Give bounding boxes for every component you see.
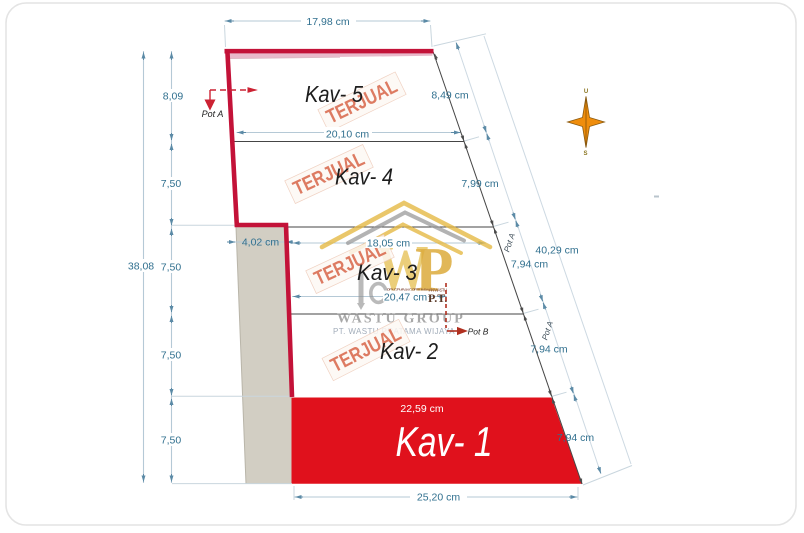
svg-text:7,50: 7,50 [161,435,182,447]
svg-text:U: U [584,89,588,95]
svg-text:17,98 cm: 17,98 cm [306,16,349,28]
svg-text:7,99 cm: 7,99 cm [461,178,499,190]
svg-text:Pot A: Pot A [502,232,517,253]
svg-text:4,02 cm: 4,02 cm [242,237,280,249]
svg-text:Kav- 1: Kav- 1 [396,418,493,465]
svg-text:7,94 cm: 7,94 cm [530,344,568,356]
svg-text:7,50: 7,50 [161,262,182,274]
svg-text:P.T.: P.T. [428,291,447,305]
svg-text:7,94 cm: 7,94 cm [511,259,549,271]
svg-text:Kav- 4: Kav- 4 [335,164,393,190]
svg-text:20,47 cm: 20,47 cm [384,292,427,304]
svg-text:Pot A: Pot A [202,109,224,119]
svg-text:7,94 cm: 7,94 cm [557,432,595,444]
svg-text:8,49 cm: 8,49 cm [431,90,469,102]
svg-text:Kav- 5: Kav- 5 [305,81,363,107]
svg-text:40,29 cm: 40,29 cm [535,245,578,257]
svg-text:38,08: 38,08 [128,261,154,273]
svg-text:8,09: 8,09 [163,91,184,103]
svg-text:Kav- 3: Kav- 3 [357,260,418,285]
svg-text:20,10 cm: 20,10 cm [326,129,369,141]
svg-text:18,05 cm: 18,05 cm [367,238,410,250]
svg-text:22,59 cm: 22,59 cm [400,403,443,415]
svg-text:S: S [583,151,587,157]
svg-text:25,20 cm: 25,20 cm [417,492,460,504]
svg-text:7,50: 7,50 [161,350,182,362]
svg-text:Kav- 2: Kav- 2 [380,338,438,364]
svg-text:7,50: 7,50 [161,178,182,190]
svg-text:Pot B: Pot B [468,327,489,337]
